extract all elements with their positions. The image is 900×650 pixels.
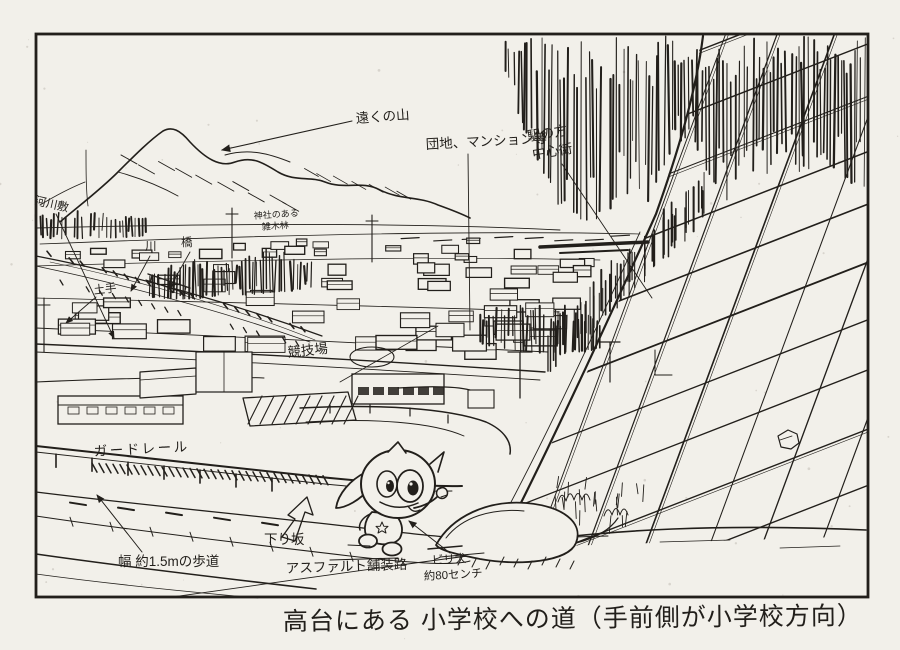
label-shrine-grove-2: 雑木林	[261, 219, 289, 232]
character-foot	[383, 543, 402, 556]
location-sketch: 遠くの山 団地、マンション等 駅の方 中心街 河川敷 川 橋 土手 神社のある …	[0, 0, 900, 650]
label-bridge: 橋	[181, 235, 193, 249]
label-downhill: 下り坂	[264, 532, 305, 547]
sketch-page: 遠くの山 団地、マンション等 駅の方 中心街 河川敷 川 橋 土手 神社のある …	[0, 0, 900, 650]
label-sidewalk-width: 幅 約1.5mの歩道	[118, 554, 219, 569]
label-river: 川	[145, 240, 157, 253]
